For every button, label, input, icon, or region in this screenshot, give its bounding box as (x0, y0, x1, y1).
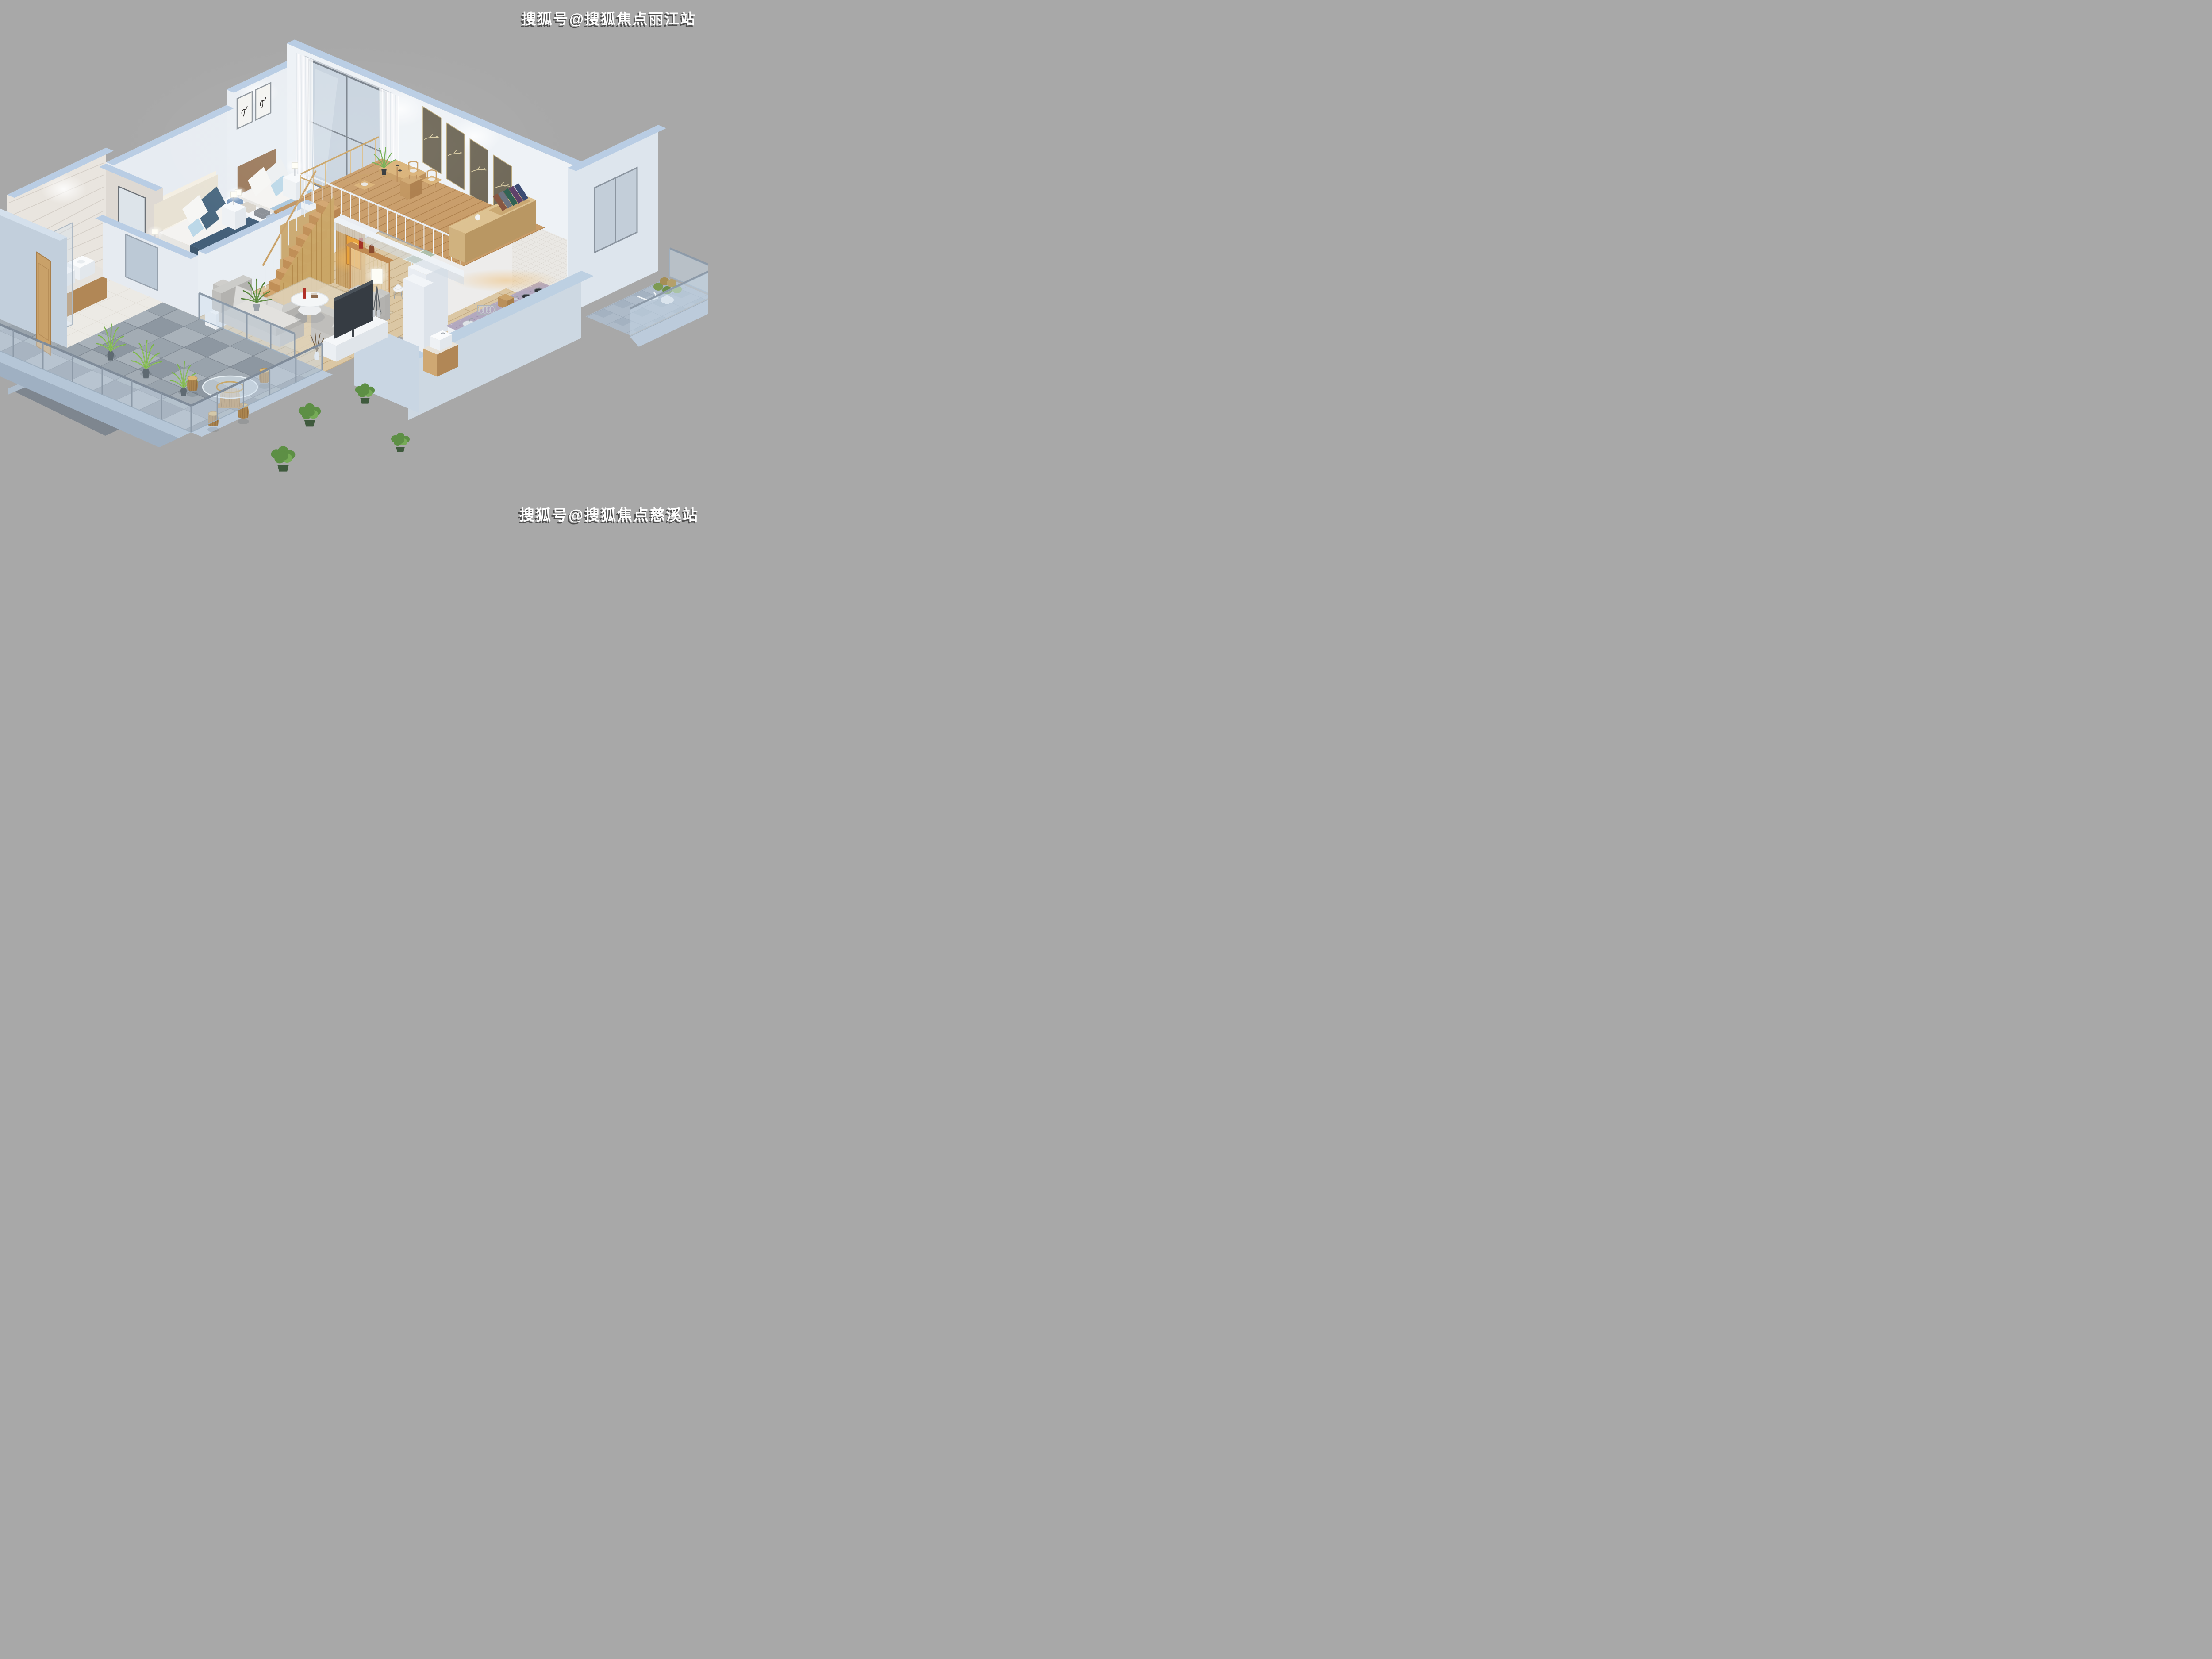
entry-door (36, 252, 50, 355)
isometric-floorplan-scene (0, 0, 708, 531)
ambient-light (115, 40, 575, 252)
render-canvas: 搜狐号@搜狐焦点丽江站 搜狐号@搜狐焦点慈溪站 (0, 0, 708, 531)
watermark-bottom-right: 搜狐号@搜狐焦点慈溪站 (519, 503, 699, 525)
watermark-top-right: 搜狐号@搜狐焦点丽江站 (522, 7, 696, 28)
